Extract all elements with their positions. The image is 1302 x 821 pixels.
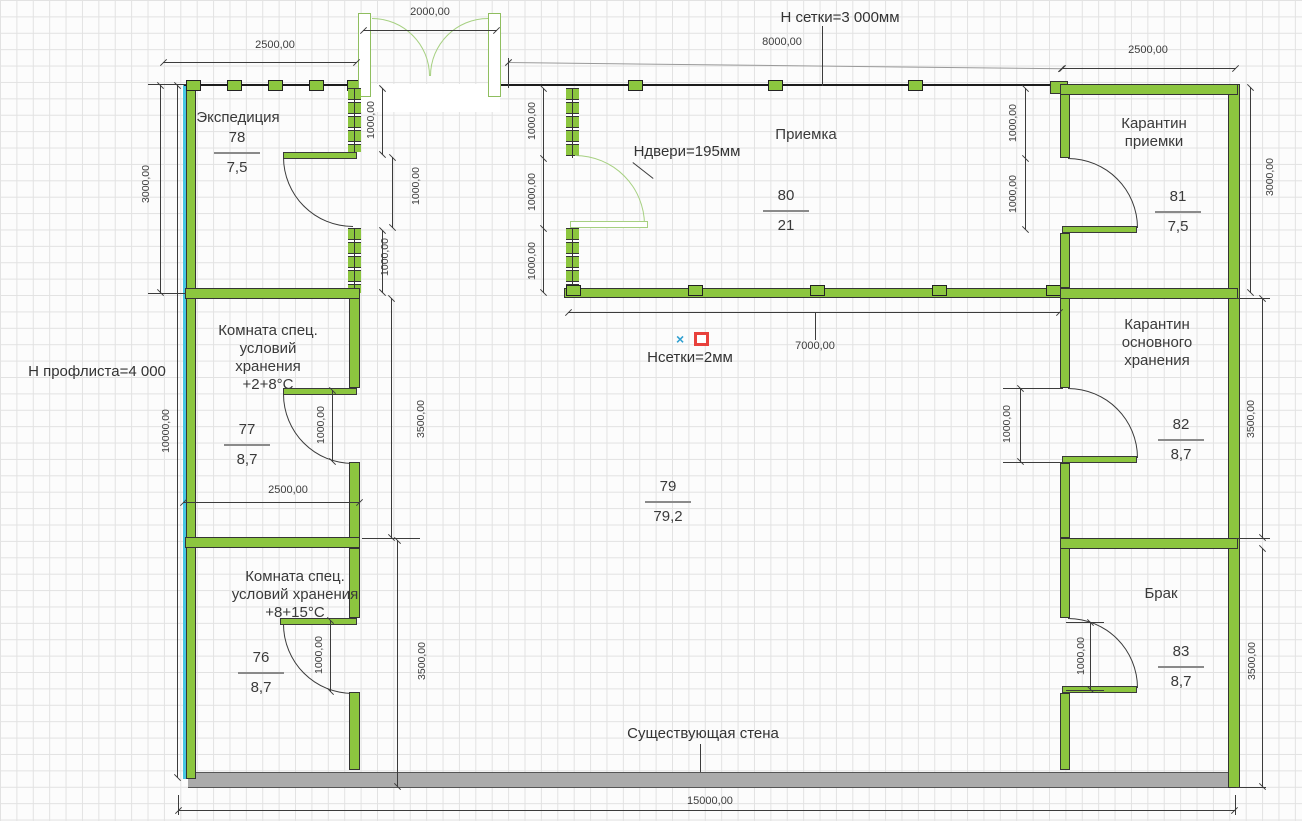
wall-priemka-left-upper [566,88,579,158]
entrance-door-swing-left [372,18,430,76]
wall-76-right-lower [349,692,360,770]
door-swing-priemka [575,155,645,225]
wall-82-left-upper [1060,298,1070,388]
dim-label-1000: 1000,00 [526,152,538,232]
wall-post [1046,285,1061,296]
dim-label-1000: 1000,00 [526,81,538,161]
room-name-83: Брак [1099,585,1223,603]
room-number: 78 [207,128,267,148]
dim-line-1000-priemka-chain [543,88,544,293]
dim-label-2500-top-right: 2500,00 [1108,44,1188,56]
room-area: 21 [756,216,816,236]
dim-line-3500-room83 [1262,548,1263,787]
dim-label-1000: 1000,00 [379,217,391,297]
dim-line-15000-bottom [178,810,1235,811]
dim-line-1000-83-door [1090,622,1091,690]
dim-label-1000: 1000,00 [313,615,325,695]
extension-line [1235,795,1236,815]
wall-81-left-upper [1060,94,1070,158]
wall-post [186,80,201,91]
room-area: 79,2 [638,507,698,527]
door-swing-81 [1068,158,1138,228]
dim-label-8000: 8000,00 [742,36,822,48]
floor-plan-canvas[interactable]: 2500,00 2000,00 8000,00 2500,00 7000,00 … [0,0,1302,821]
door-leaf-82 [1062,456,1137,463]
wall-post [566,285,581,296]
door-leaf-priemka [570,221,648,228]
room-number: 82 [1151,415,1211,435]
dim-label-1000: 1000,00 [410,146,422,226]
room-area: 7,5 [207,158,267,178]
dim-line-1000-76-door [330,620,331,692]
room-name-82: Карантин основного хранения [1095,316,1219,370]
dim-line-7000 [568,312,1060,313]
dim-line-2500-top-left [163,62,357,63]
fraction-line [214,152,260,154]
wall-post [810,285,825,296]
dim-line-1000-exp-door [392,157,393,228]
room-number: 80 [756,186,816,206]
dim-line-3000-right [1250,87,1251,293]
wall-82-left-lower [1060,463,1070,538]
dim-line-10000-left [177,85,178,778]
wall-82-83-divider [1060,538,1238,549]
dim-label-2500-top-left: 2500,00 [235,39,315,51]
wall-83-left-lower [1060,693,1070,770]
extension-line [1236,787,1266,788]
dim-label-1000: 1000,00 [526,221,538,301]
room-number: 79 [638,477,698,497]
door-leaf-81 [1062,226,1137,233]
dim-line-1000-exp-upper [382,88,383,155]
dim-label-7000: 7000,00 [775,340,855,352]
leader-7000 [815,313,816,340]
dim-label-3500-room76: 3500,00 [416,621,428,701]
room-name-76: Комната спец. условий хранения +8+15°C [193,568,397,622]
wall-78-77-divider [185,288,360,299]
annotation-grid-height: Н сетки=3 000мм [740,9,940,26]
room-value-82: 82 8,7 [1151,415,1211,465]
fraction-line [645,501,691,503]
room-name-line: +8+15°C [193,604,397,622]
extension-line [148,84,186,85]
room-name-line: Комната спец. [193,568,397,586]
wall-post [932,285,947,296]
room-number: 81 [1148,187,1208,207]
room-name-line: Брак [1099,585,1223,603]
room-name-line: Комната спец. [186,322,350,340]
fraction-line [1158,439,1204,441]
dim-label-1000: 1000,00 [1001,384,1013,464]
dim-line-1000-82-door [1020,388,1021,462]
room-name-line: хранения [1095,352,1219,370]
wall-post [768,80,783,91]
dim-label-15000: 15000,00 [670,795,750,807]
entrance-door-swing-right [430,18,488,76]
extension-line [178,795,179,815]
wall-83-left-upper [1060,548,1070,618]
wall-81-left-lower [1060,233,1070,288]
door-swing-82 [1068,388,1138,458]
room-value-83: 83 8,7 [1151,642,1211,692]
dim-line-2500-top-right [1062,68,1236,69]
room-name-line: Карантин [1092,115,1216,133]
annotation-door-height: Ндвери=195мм [607,143,767,160]
wall-77-right-lower [349,462,360,538]
leader-existing-wall [700,744,701,772]
fraction-line [763,210,809,212]
wall-expedition-right-lower [348,228,361,293]
annotation-mesh-height: Нсетки=2мм [610,349,770,366]
wall-post [227,80,242,91]
dim-label-3500-room82: 3500,00 [1245,379,1257,459]
room-name-line: приемки [1092,133,1216,151]
dim-label-1000: 1000,00 [315,385,327,465]
room-name-line: хранения [186,358,350,376]
room-area: 7,5 [1148,217,1208,237]
dim-label-2000: 2000,00 [390,6,470,18]
dim-label-3000-right: 3000,00 [1264,137,1276,217]
annotation-prof-sheet: Н профлиста=4 000 [17,363,177,380]
room-name-line: условий [186,340,350,358]
room-name-line: Экспедиция [158,109,318,127]
existing-wall [188,772,1233,788]
room-name-line: основного [1095,334,1219,352]
room-value-76: 76 8,7 [231,648,291,698]
dim-label-1000: 1000,00 [1075,616,1087,696]
room-area: 8,7 [231,678,291,698]
door-swing-expedition [283,157,353,227]
fraction-line [238,672,284,674]
dim-line-3500-room76 [397,540,398,787]
room-name-line: +2+8°C [186,376,350,394]
extension-line [1236,298,1270,299]
room-number: 83 [1151,642,1211,662]
room-number: 76 [231,648,291,668]
dim-label-1000: 1000,00 [1007,154,1019,234]
wall-post [309,80,324,91]
leader-grid-height [822,26,823,86]
dim-label-3500-room83: 3500,00 [1246,621,1258,701]
fraction-line [224,444,270,446]
fraction-line [1158,666,1204,668]
dim-line-3500-room82 [1262,298,1263,538]
wall-expedition-right-upper [348,88,361,152]
wall-77-76-divider [185,537,360,548]
room-name-80: Приемка [726,126,886,144]
wall-post [908,80,923,91]
extension-line [148,293,186,294]
room-name-line: условий хранения [193,586,397,604]
wall-post [268,80,283,91]
room-name-line: Приемка [726,126,886,144]
dim-label-2500-room77: 2500,00 [248,484,328,496]
wall-81-82-divider [1060,288,1238,299]
room-name-78: Экспедиция [158,109,318,127]
wall-81-top [1060,84,1238,95]
room-number: 77 [217,420,277,440]
extension-line [1236,538,1270,539]
dim-label-1000: 1000,00 [365,80,377,160]
room-value-79: 79 79,2 [638,477,698,527]
extension-line [362,538,420,539]
wall-77-right-upper [349,298,360,388]
dim-label-10000: 10000,00 [160,391,172,471]
fraction-line [1155,211,1201,213]
annotation-existing-wall: Существующая стена [603,725,803,742]
dim-label-1000: 1000,00 [1007,83,1019,163]
dim-line-8000-priemka [508,62,1062,69]
wall-post [688,285,703,296]
wall-priemka-left-lower [566,228,579,293]
room-value-77: 77 8,7 [217,420,277,470]
right-wall [1228,84,1240,788]
room-area: 8,7 [217,450,277,470]
wall-post [628,80,643,91]
room-area: 8,7 [1151,672,1211,692]
room-name-line: Карантин [1095,316,1219,334]
dim-line-1000-77-door [332,390,333,462]
dim-line-3500-room77 [391,298,392,538]
dim-line-2000-entrance [363,30,497,31]
left-wall [186,85,196,779]
room-area: 8,7 [1151,445,1211,465]
dim-line-2500-room77 [183,502,360,503]
dim-label-3000-left: 3000,00 [140,144,152,224]
snap-cross-icon: × [676,334,684,344]
room-value-80: 80 21 [756,186,816,236]
room-name-81: Карантин приемки [1092,115,1216,151]
extension-line [508,58,509,88]
leader-door-height [632,162,653,179]
room-name-77: Комната спец. условий хранения +2+8°C [186,322,350,394]
room-value-81: 81 7,5 [1148,187,1208,237]
selection-handle[interactable] [694,332,709,346]
dim-label-3500-room77: 3500,00 [415,379,427,459]
entrance-door-frame-right [488,13,501,97]
room-value-78: 78 7,5 [207,128,267,178]
